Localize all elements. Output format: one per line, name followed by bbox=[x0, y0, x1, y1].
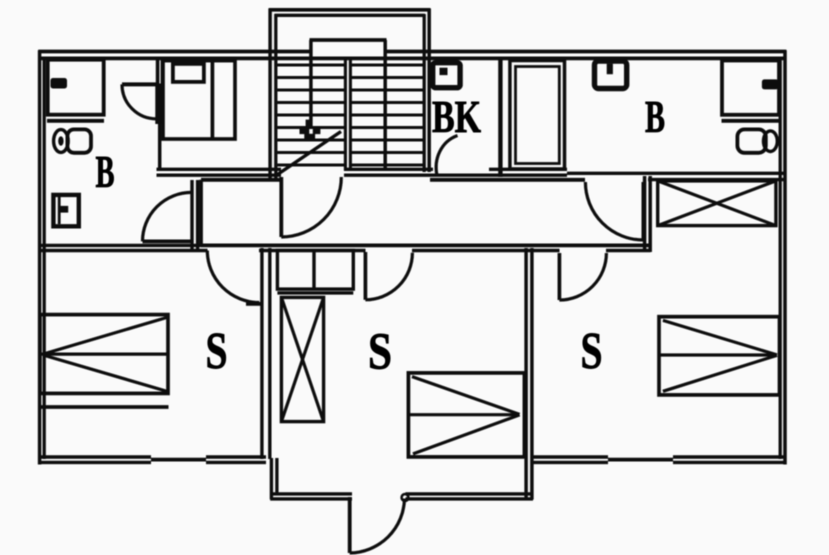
svg-text:B: B bbox=[96, 147, 115, 197]
svg-text:S: S bbox=[206, 323, 228, 380]
svg-text:B: B bbox=[645, 91, 665, 142]
svg-text:S: S bbox=[368, 324, 392, 381]
svg-text:S: S bbox=[581, 323, 603, 380]
svg-text:BK: BK bbox=[432, 91, 481, 142]
